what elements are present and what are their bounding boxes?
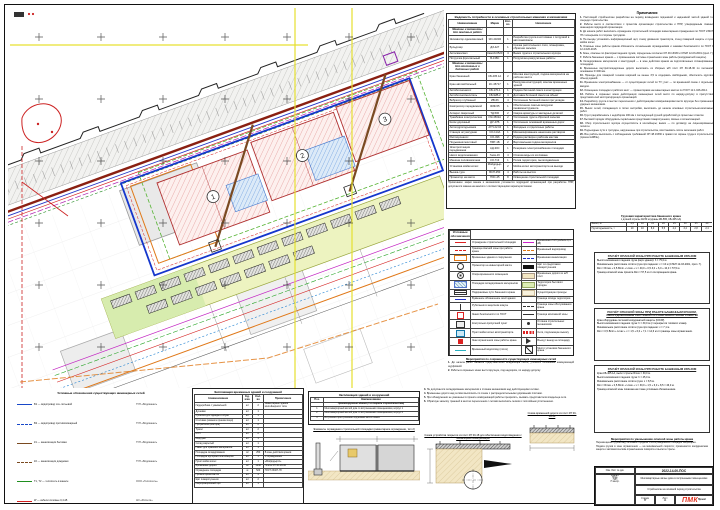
legend-symbol (455, 242, 466, 243)
crane-load-value: 8,0 (647, 227, 658, 232)
note-item: Работы в охранных зонах действующих инже… (580, 93, 714, 100)
calc-line: Граница опасной зоны принята Rоп = 57,5 … (597, 271, 707, 274)
title-block: Изм. Лист № док. 2022-14-00-ПОС Разраб. … (594, 466, 714, 506)
crane-load-value: 3,4 (680, 227, 691, 232)
legend-symbol (456, 330, 465, 337)
utilities-legend-row: К1 — канализация бытовая ГУП «Водоканал» (14, 435, 188, 453)
utilities-legend-row: К2 — канализация дождевая ГУП «Водоканал… (14, 454, 188, 472)
note-item: Освещение площадки и рабочих мест — прож… (580, 89, 714, 92)
legend-row: Граница опасной зоны при работе крана Вр… (450, 247, 574, 255)
calc-line: Высота возможного падения груза: h = 45,… (597, 376, 707, 379)
legend-row: Знаки безопасности по ГОСТ Граница монта… (450, 311, 574, 320)
legend-symbol (454, 255, 467, 261)
note-item: Все работы выполнять с соблюдением требо… (580, 133, 714, 140)
note-item: На въезде установить информационный щит,… (580, 38, 714, 45)
temp-buildings-panel: Экспликация временных зданий и сооружени… (192, 388, 304, 504)
calc-line: Минимальное расстояние отлёта груза при … (597, 326, 707, 329)
utilities-legend-row: В1 — водопровод хоз.-питьевой ГУП «Водок… (14, 396, 188, 414)
calc-line: Высота возможного падения груза (верх зд… (597, 259, 707, 262)
legend-row: Площадки складирования материалов Террит… (450, 280, 574, 289)
utility-symbol (17, 404, 32, 405)
legend-row: Ограждение строительной площадки Временн… (450, 239, 574, 247)
utility-symbol (17, 501, 32, 502)
calc-line: Rоп = Rmax + 0,5·Bmin + Lmax + x = 40,0 … (597, 267, 707, 270)
calc2-title: РАСЧЁТ ОПАСНОЙ ЗОНЫ ПРИ РАБОТЕ БАШЕННЫМ … (597, 311, 707, 318)
stage-cell: СтадияП (635, 495, 655, 505)
calc-line: Rоп = 0,5·Bmin + Lmax + x = 1,5 + 6,0 + … (597, 330, 707, 333)
danger-zone-calc-3: РАСЧЁТ ОПАСНОЙ ЗОНЫ ПРИ РАБОТЕ БАШЕННЫМ … (594, 365, 710, 433)
calc-line: Минимальное расстояние отлёта груза: х =… (597, 380, 707, 383)
crane-table-subtitle: с длиной стрелы 40/30 м (краны КБ-565, К… (590, 218, 712, 221)
crane-measures: Мероприятия по уменьшению опасной зоны р… (596, 438, 708, 464)
legend-row: Прожектор на инвентарной мачте Щит со ср… (450, 262, 574, 271)
legend-symbol (527, 322, 530, 325)
note-item: Разработку грунта в местах пересечения с… (580, 100, 714, 107)
note-item: Грунт разрабатывать с недобором 100 мм с… (580, 114, 714, 117)
legend-row: Подкрановые пути башенного крана Существ… (450, 289, 574, 297)
machines-table-note: Примечание: марки машин и механизмов уто… (448, 181, 574, 188)
machines-row: Компрессор передвижной ЗИФ-55 1 Обеспече… (449, 103, 575, 111)
utility-symbol (17, 443, 32, 444)
company-logo: ПМК Проект (675, 495, 713, 505)
temp-building-row: Информационный щит шт 1 (195, 483, 303, 488)
legend-symbol (523, 258, 534, 259)
legend-symbol (523, 306, 534, 307)
legend-row: Знак ограничения зоны работы крана Въезд… (450, 338, 574, 346)
crane-load-value: 2,8 (691, 227, 702, 232)
buildings-expl-table: Поз. Наименование Проектируемые здания (… (310, 397, 419, 421)
legend-symbol (523, 314, 534, 315)
legend-symbol (522, 290, 535, 296)
networks-measure-item: До начала работ вызвать представителей в… (448, 361, 574, 368)
note-item: Настоящий стройгенплан разработан на пер… (580, 16, 714, 23)
titleblock-roles: Разраб. Пров. ГИП Н.контр. (595, 474, 635, 505)
machines-table: Наименование Марка Кол-во Назначение Маш… (448, 19, 575, 181)
legend-symbol (523, 298, 534, 302)
legend-symbol (454, 281, 467, 288)
buildings-expl-row: 3 Встроенно-пристроенная подземная автос… (311, 416, 419, 421)
machines-row: Бульдозер ДЗ-42Г 1 Срезка растительного … (449, 43, 575, 51)
machines-row: Кран башенный КБ-405.1А 2 Монтаж констру… (449, 72, 575, 80)
legend-symbol (455, 350, 466, 351)
buildings-expl-panel: Экспликация зданий и сооружений Поз. Наи… (308, 391, 420, 425)
site-plan: 1 2 3 (8, 6, 444, 388)
legend-row: Временный водоотвод (лоток) Место устано… (450, 345, 574, 355)
machines-row: Экскаватор одноковшовый ЭО-4321Б 1 Разра… (449, 35, 575, 43)
legend-symbol (522, 282, 535, 288)
legend-table: Условные обозначения Ограждение строител… (449, 230, 574, 356)
slab-detail: Схема устройства покрытия из плит 2П 30-… (424, 434, 522, 504)
note-item: Временное электроснабжение — от существу… (580, 81, 714, 88)
note-item: Бытовой городок оборудовать первичными с… (580, 118, 714, 121)
crane-load-value: 10 (627, 227, 638, 232)
note-item: Сбор строительного мусора осуществлять в… (580, 122, 714, 129)
document-code: 2022-14-00-ПОС (635, 467, 713, 474)
road-detail: Схема временной дороги из плит 2П 30-18-… (526, 412, 578, 474)
calc1-title: РАСЧЁТ ОПАСНОЙ ЗОНЫ ПРИ РАБОТЕ БАШЕННЫМ … (597, 255, 707, 258)
fence-detail-drawing (308, 431, 420, 489)
machines-row: Машины и механизмы для земляных работ (449, 27, 575, 35)
networks-measure-item: Работы в охранных зонах вести вручную, п… (448, 369, 574, 372)
crane-load-value: 2,4 (702, 227, 712, 232)
danger-zone-calc-2: РАСЧЁТ ОПАСНОЙ ЗОНЫ ПРИ РАБОТЕ БАШЕННЫМ … (594, 308, 710, 361)
machines-row: Прожектор на мачте ПЗС-45 8 Освещение ст… (449, 175, 575, 180)
machines-row: Кран автомобильный КС-45717 1 Разгрузка … (449, 80, 575, 88)
utilities-legend-row: Т1, Т2 — теплосеть в канале ООО «Теплосе… (14, 473, 188, 491)
legend-symbol (455, 250, 466, 251)
legend-row: Опора временного освещения Временные дор… (450, 271, 574, 280)
calc-line: Граница опасной зоны показана на плане у… (597, 388, 707, 391)
legend-symbol (522, 273, 535, 279)
note-item: Зоны, опасные по факторам падения грузов… (580, 52, 714, 55)
danger-zone-calc-1: РАСЧЁТ ОПАСНОЙ ЗОНЫ ПРИ РАБОТЕ БАШЕННЫМ … (594, 252, 710, 304)
notes-panel: Примечания Настоящий стройгенплан разраб… (580, 11, 714, 211)
legend-title: Условные обозначения (450, 231, 471, 240)
legend-symbol (458, 304, 462, 310)
legend-row: Контрольно-пропускной пункт Стоянка стро… (450, 320, 574, 329)
note-item: Временные внутриплощадочные дороги выпол… (580, 67, 714, 74)
drawing-sheet: 1 2 3 (0, 0, 720, 510)
details-note-item: Обратную засыпку траншей в местах пересе… (424, 400, 576, 403)
road-detail-drawing (526, 418, 578, 464)
note-item: До начала работ выполнить ограждение стр… (580, 30, 714, 37)
legend-panel: Условные обозначения Ограждение строител… (448, 229, 574, 356)
note-item: Работы вести в соответствии с проектом о… (580, 23, 714, 30)
titleblock-columns: Изм. Лист № док. (595, 467, 635, 474)
details-note-item: Временные дороги над сетями выполнять по… (424, 392, 576, 395)
calc-line: Кран оборудован системой координатной за… (597, 319, 707, 322)
machines-row: Машины и механизмы для монтажных и бетон… (449, 61, 575, 72)
legend-symbol (454, 290, 467, 295)
legend-symbol (457, 272, 464, 279)
calc-line: Кран КБ-405.1А, вылет стрелы Rmax = 30,0… (597, 372, 707, 375)
machines-row: Электростанция передвижная АД-30С 1 Резе… (449, 145, 575, 153)
temp-building-row: Гардеробная с умывальной шт 2 Инвентарны… (195, 402, 303, 409)
utilities-legend: Условные обозначения существующих инжене… (14, 391, 188, 503)
crane-measure-line: Подача грузов в зоне ограничения — на ми… (596, 445, 708, 452)
legend-row: Рубильник в защитном кожухе Граница зоны… (450, 303, 574, 311)
machines-col-model: Марка (486, 20, 503, 28)
utility-symbol (17, 481, 32, 482)
legend-symbol (526, 338, 531, 344)
legend-symbol (456, 321, 465, 328)
utility-symbol (17, 424, 32, 425)
legend-symbol (523, 265, 534, 269)
crane-table-panel: Грузовая характеристика башенного крана … (590, 214, 712, 248)
calc-line: Высота возможного падения груза: h = 30,… (597, 322, 707, 325)
details-note-item: Не допускается складирование материалов … (424, 388, 576, 391)
utilities-legend-row: W — кабели силовые 0,4 кВ АО «Россети» (14, 492, 188, 503)
legend-symbol (525, 346, 533, 354)
slab-detail-drawing (424, 440, 522, 492)
machines-col-use: Назначение (512, 20, 574, 28)
machines-col-name: Наименование (449, 20, 487, 28)
object-name: Многоквартирные жилые дома со встроенным… (635, 474, 713, 485)
note-item: Работа башенных кранов — с применением с… (580, 56, 714, 59)
calc-line: Rоп = Rmax + 0,5·Bmin + Lmax + x = 30,0 … (597, 384, 707, 387)
machines-table-title: Ведомость потребности в основных строите… (448, 15, 574, 19)
utilities-legend-row: В2 — водопровод противопожарный ГУП «Вод… (14, 415, 188, 433)
legend-symbol (523, 331, 534, 334)
sheet-cell: Лист14 (655, 495, 675, 505)
utilities-legend-title: Условные обозначения существующих инжене… (14, 391, 188, 395)
machines-table-panel: Ведомость потребности в основных строите… (446, 13, 576, 209)
details-note-item: При обнаружении не указанных в проекте к… (424, 396, 576, 399)
sheet-name: Стройгенплан на основной период строител… (635, 485, 713, 496)
legend-symbol (455, 299, 466, 300)
fence-detail: Элементы ограждения строительной площадк… (308, 428, 420, 504)
note-item: Проезды для пожарной техники шириной не … (580, 74, 714, 81)
note-item: Складирование материалов и конструкций —… (580, 60, 714, 67)
crane-load-value: 10 (638, 227, 648, 232)
legend-symbol (457, 263, 464, 270)
crane-load-value: 5,5 (658, 227, 669, 232)
survey-cross-grid (8, 6, 444, 388)
legend-row: Пункт мойки колес автотранспорта Сети, п… (450, 329, 574, 338)
legend-symbol (523, 242, 534, 243)
note-item: Опасные зоны работы кранов обозначить си… (580, 45, 714, 52)
networks-measures: Мероприятия по сохранности существующих … (448, 358, 574, 386)
temp-buildings-table: Наименование Ед. изм. Кол-во Примечание … (194, 394, 303, 488)
machines-row: Установка мойки колес Мойдодыр-К 2 Мойка… (449, 163, 575, 171)
notes-title: Примечания (580, 11, 714, 15)
calc-line: Минимальное расстояние отлёта груза при … (597, 263, 707, 266)
note-item: Подъездные пути и тротуары, нарушенные п… (580, 129, 714, 132)
note-item: Вынос сетей, попадающих в пятно застройк… (580, 107, 714, 114)
legend-symbol (458, 339, 463, 344)
legend-symbol (457, 312, 464, 319)
crane-load-value: 4,2 (669, 227, 680, 232)
utility-symbol (17, 462, 32, 463)
machines-col-qty: Кол-во (503, 20, 512, 28)
legend-symbol (523, 250, 534, 251)
pmk-logo: ПМК (682, 497, 698, 504)
crane-load-label: Грузоподъемность, т (591, 227, 627, 232)
calc3-title: РАСЧЁТ ОПАСНОЙ ЗОНЫ ПРИ РАБОТЕ БАШЕННЫМ … (597, 368, 707, 371)
legend-row: Временные здания и сооружения Временная … (450, 254, 574, 262)
crane-load-table: Вылет, м 4,510152025303540 Грузоподъемно… (590, 222, 712, 232)
